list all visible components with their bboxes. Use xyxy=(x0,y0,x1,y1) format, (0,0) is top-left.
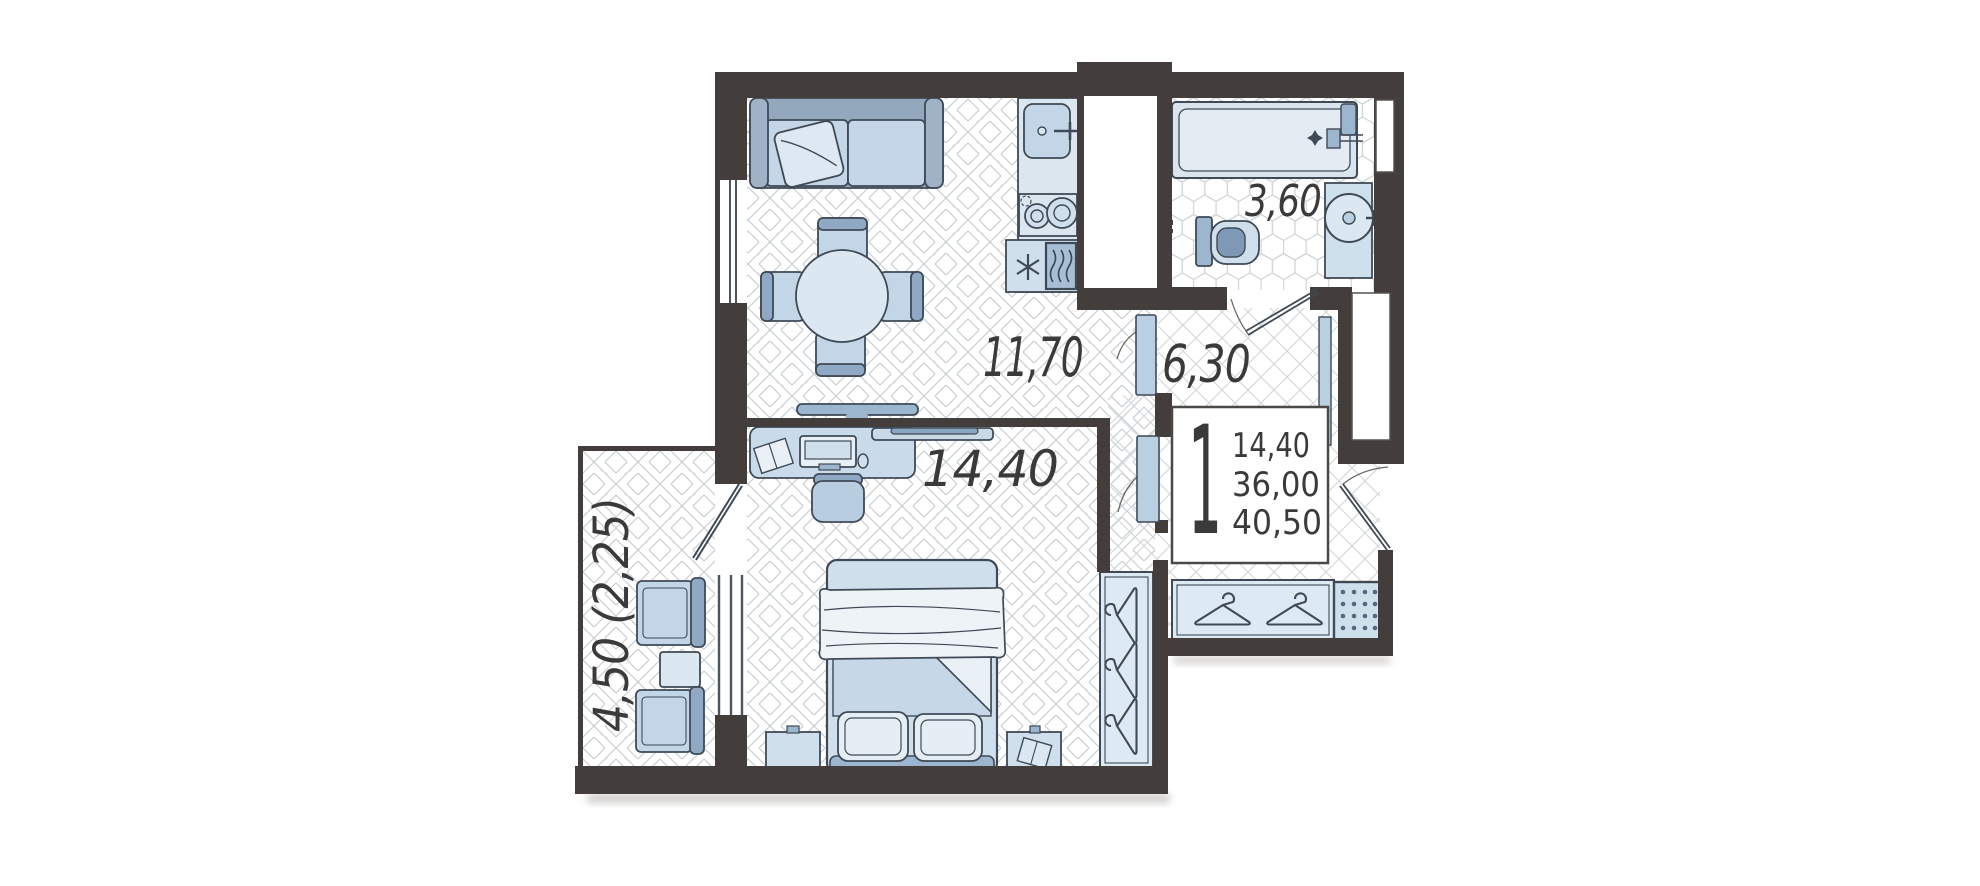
tv-bedroom-icon xyxy=(872,428,993,440)
vent-shaft xyxy=(1084,96,1157,288)
bed-icon xyxy=(819,560,1005,773)
room-label-hallway: 6,30 xyxy=(1162,335,1250,395)
info-area: 36,00 xyxy=(1232,465,1320,505)
balcony-table-icon xyxy=(660,652,700,687)
fridge-oven-block xyxy=(1006,240,1078,292)
floor-plan-page: 11,70 6,30 3,60 14,40 4,50 (2,25) 1 14,4… xyxy=(0,0,1980,886)
info-rooms-count: 1 xyxy=(1188,395,1222,569)
wall-niche xyxy=(1376,100,1394,172)
floor-plan-drawing: 11,70 6,30 3,60 14,40 4,50 (2,25) 1 14,4… xyxy=(0,0,1980,886)
sofa-icon xyxy=(750,98,943,188)
kitchen-sink-icon xyxy=(1024,104,1078,158)
bedroom-wardrobe-icon xyxy=(1100,572,1153,768)
closet-wardrobe-icon xyxy=(1172,580,1334,640)
room-label-balcony: 4,50 (2,25) xyxy=(584,498,640,732)
wall-left xyxy=(715,72,747,180)
bed-throw xyxy=(819,588,1005,660)
info-living-area: 14,40 xyxy=(1232,426,1310,466)
info-total-area: 40,50 xyxy=(1232,503,1322,543)
room-label-bedroom: 14,40 xyxy=(922,440,1058,498)
info-box: 1 14,40 36,00 40,50 xyxy=(1172,395,1328,569)
dining-table-icon xyxy=(796,250,888,342)
wall-top xyxy=(715,72,1404,98)
hallway-closet xyxy=(1172,580,1380,640)
room-label-living-kitchen: 11,70 xyxy=(983,326,1083,389)
balcony-chair-icon xyxy=(637,578,705,647)
cooktop-icon xyxy=(1019,194,1077,236)
mug-icon xyxy=(858,454,868,468)
balcony-chair-icon xyxy=(636,687,704,754)
shoe-cabinet-icon xyxy=(1334,582,1380,640)
nightstand-left-icon xyxy=(766,726,820,772)
nightstand-right-icon xyxy=(1007,726,1061,772)
balcony-wall xyxy=(578,446,583,768)
wall-living-bedroom xyxy=(745,418,1110,427)
room-label-bathroom: 3,60 xyxy=(1245,176,1321,227)
balcony-window-icon xyxy=(715,575,747,715)
entry-niche xyxy=(1352,293,1390,440)
living-window-icon xyxy=(715,180,747,303)
desk-chair-icon xyxy=(812,474,864,522)
wall-bottom xyxy=(575,766,1168,794)
